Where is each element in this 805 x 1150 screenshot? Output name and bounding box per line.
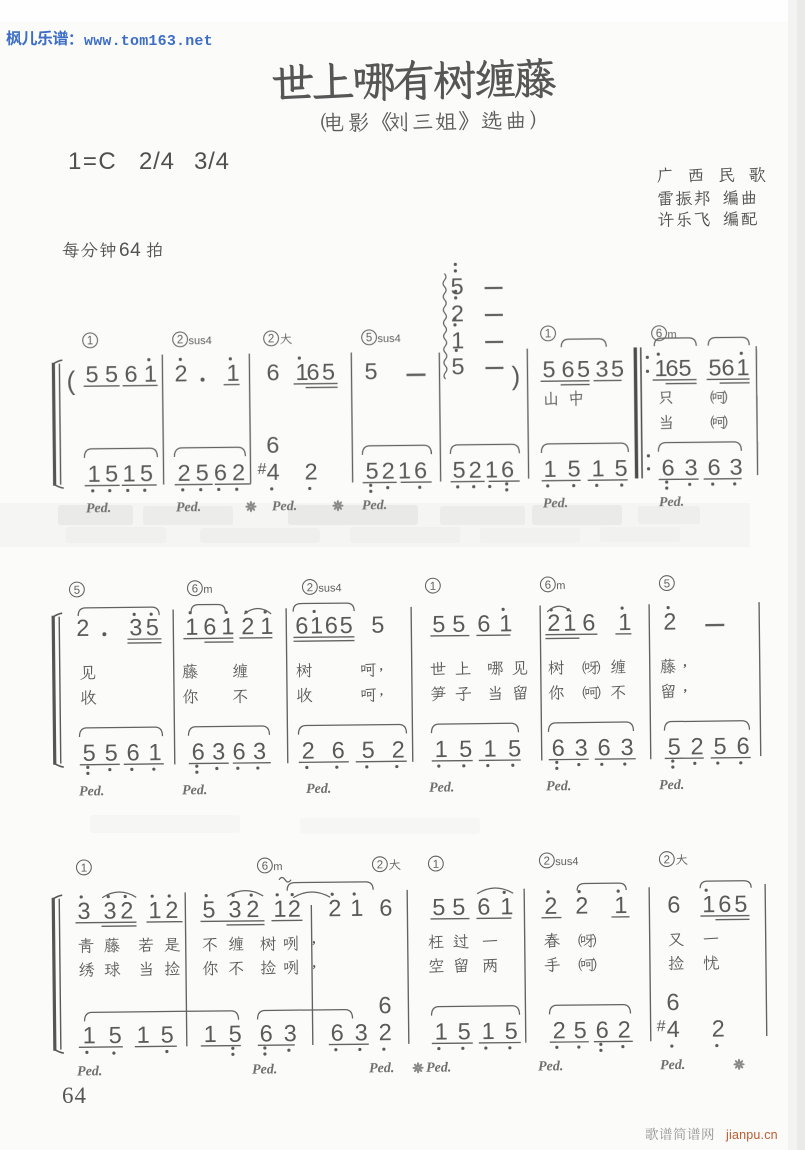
svg-text:2: 2 — [664, 854, 671, 866]
svg-text:6: 6 — [666, 989, 679, 1015]
svg-text:1: 1 — [87, 336, 94, 348]
svg-text:6: 6 — [545, 580, 552, 592]
svg-text:1: 1 — [591, 455, 604, 481]
svg-text:5: 5 — [229, 1021, 242, 1047]
svg-text:5216: 5216 — [365, 457, 430, 484]
svg-text:35: 35 — [595, 356, 626, 382]
svg-text:1: 1 — [499, 610, 512, 636]
svg-text:2: 2 — [76, 615, 89, 641]
svg-text:1: 1 — [204, 1021, 217, 1047]
svg-text:1: 1 — [618, 609, 631, 635]
svg-text:Ped.: Ped. — [660, 1058, 685, 1073]
svg-text:6: 6 — [665, 355, 678, 381]
svg-text:Ped.: Ped. — [272, 499, 297, 514]
svg-text:2: 2 — [712, 1015, 725, 1041]
svg-text:6: 6 — [721, 354, 734, 380]
svg-text:5: 5 — [362, 737, 375, 763]
svg-text:Ped.: Ped. — [362, 498, 387, 513]
svg-text:3/4: 3/4 — [194, 148, 230, 175]
svg-text:6: 6 — [379, 895, 392, 921]
svg-text:5: 5 — [371, 612, 384, 638]
svg-text:1: 1 — [81, 863, 88, 875]
svg-text:#: # — [657, 1018, 666, 1035]
svg-text:sus4: sus4 — [188, 335, 211, 347]
svg-text:6: 6 — [477, 611, 490, 637]
svg-text:1: 1 — [614, 892, 627, 918]
svg-text:64: 64 — [62, 1083, 87, 1108]
svg-text:5: 5 — [364, 358, 377, 384]
svg-text:5: 5 — [450, 273, 463, 299]
svg-text:3: 3 — [684, 454, 697, 480]
svg-text:64: 64 — [119, 240, 141, 261]
svg-text:Ped.: Ped. — [659, 778, 684, 793]
svg-text:Ped.: Ped. — [306, 782, 331, 797]
svg-text:15: 15 — [482, 1018, 528, 1044]
svg-text:1515: 1515 — [87, 460, 157, 487]
svg-text:2: 2 — [304, 458, 317, 484]
svg-text:2: 2 — [544, 856, 551, 868]
svg-text:5: 5 — [708, 355, 721, 381]
svg-text:5: 5 — [614, 455, 627, 481]
svg-text:5: 5 — [664, 578, 671, 590]
svg-text:5: 5 — [109, 1022, 122, 1048]
svg-text:6: 6 — [260, 1020, 273, 1046]
svg-text:6: 6 — [266, 359, 279, 385]
svg-text:55: 55 — [432, 894, 472, 920]
svg-text:2: 2 — [302, 737, 315, 763]
svg-text:5: 5 — [567, 456, 580, 482]
svg-text:65: 65 — [306, 359, 337, 385]
svg-text:161: 161 — [185, 613, 239, 640]
svg-text:15: 15 — [435, 1018, 481, 1044]
svg-text:1515: 1515 — [435, 735, 533, 762]
svg-text:2: 2 — [379, 1019, 392, 1045]
svg-text:1: 1 — [430, 581, 437, 593]
svg-text:sus4: sus4 — [377, 333, 400, 345]
svg-text:2: 2 — [307, 582, 314, 594]
svg-text:6: 6 — [192, 583, 199, 595]
svg-text:6165: 6165 — [295, 612, 354, 639]
svg-text:Ped.: Ped. — [369, 1061, 394, 1076]
svg-text:55: 55 — [432, 611, 472, 637]
svg-text:12: 12 — [148, 897, 182, 923]
svg-text:1: 1 — [226, 360, 239, 386]
svg-text:2: 2 — [174, 360, 187, 386]
svg-text:1: 1 — [433, 859, 440, 871]
svg-text:1=C: 1=C — [68, 148, 117, 175]
svg-text:3: 3 — [729, 454, 742, 480]
svg-text:Ped.: Ped. — [77, 1064, 102, 1079]
svg-text:165: 165 — [702, 891, 750, 918]
svg-text:6: 6 — [262, 861, 269, 873]
svg-text:5216: 5216 — [452, 456, 517, 483]
svg-text:Ped.: Ped. — [538, 1059, 563, 1074]
svg-text:4: 4 — [266, 459, 279, 485]
svg-text:5: 5 — [161, 1021, 174, 1047]
svg-text:1: 1 — [545, 329, 552, 341]
svg-text:32: 32 — [103, 897, 137, 923]
svg-text:1: 1 — [83, 1022, 96, 1048]
svg-text:6: 6 — [707, 454, 720, 480]
svg-text:Ped.: Ped. — [543, 496, 568, 511]
svg-text:5561: 5561 — [83, 739, 171, 766]
svg-text:6: 6 — [661, 455, 674, 481]
svg-text:5561: 5561 — [85, 361, 163, 388]
svg-text:6: 6 — [266, 432, 279, 458]
svg-text:Ped.: Ped. — [182, 783, 207, 798]
svg-text:#: # — [257, 461, 266, 478]
svg-text:4: 4 — [667, 1016, 680, 1042]
svg-text:m: m — [556, 580, 565, 592]
svg-text:1: 1 — [260, 613, 273, 639]
svg-text:1: 1 — [543, 456, 556, 482]
svg-text:Ped.: Ped. — [429, 780, 454, 795]
svg-text:3: 3 — [284, 1020, 297, 1046]
svg-text:6: 6 — [332, 737, 345, 763]
svg-text:6: 6 — [378, 992, 391, 1018]
svg-text:62: 62 — [596, 1016, 640, 1042]
svg-text:sus4: sus4 — [555, 856, 578, 868]
svg-text:Ped.: Ped. — [426, 1060, 451, 1075]
svg-text:6: 6 — [477, 894, 490, 920]
svg-text:5: 5 — [366, 332, 373, 344]
svg-text:): ) — [511, 361, 520, 391]
svg-text:5: 5 — [202, 896, 215, 922]
svg-text:2: 2 — [451, 300, 464, 326]
svg-text:1: 1 — [137, 1022, 150, 1048]
svg-text:5: 5 — [542, 356, 555, 382]
svg-text:m: m — [273, 861, 282, 873]
svg-text:m: m — [667, 329, 676, 341]
svg-text:35: 35 — [129, 614, 162, 640]
svg-text:Ped.: Ped. — [86, 501, 111, 516]
svg-text:5: 5 — [678, 355, 691, 381]
svg-text:6363: 6363 — [192, 738, 274, 765]
svg-text:21: 21 — [547, 610, 579, 636]
svg-text:6: 6 — [331, 1020, 344, 1046]
svg-text:2: 2 — [544, 893, 557, 919]
svg-text:2562: 2562 — [177, 459, 250, 486]
svg-text:2/4: 2/4 — [139, 148, 175, 175]
svg-text:sus4: sus4 — [318, 582, 341, 594]
svg-text:2: 2 — [663, 609, 676, 635]
svg-text:1: 1 — [350, 895, 363, 921]
svg-text:3: 3 — [355, 1019, 368, 1045]
svg-text:6: 6 — [667, 891, 680, 917]
svg-text:1: 1 — [736, 354, 749, 380]
svg-text:3: 3 — [77, 898, 90, 924]
svg-text:jianpu.cn: jianpu.cn — [725, 1128, 778, 1142]
svg-text:1: 1 — [451, 327, 464, 353]
svg-text:2: 2 — [392, 736, 405, 762]
svg-text:2: 2 — [268, 334, 275, 346]
svg-text:：: ： — [68, 31, 83, 48]
svg-text:32: 32 — [228, 896, 264, 922]
svg-text:5: 5 — [451, 353, 464, 379]
svg-text:6363: 6363 — [551, 734, 643, 761]
svg-text:2: 2 — [377, 859, 384, 871]
svg-text:2: 2 — [241, 613, 254, 639]
svg-text:6: 6 — [582, 609, 595, 635]
svg-text:25: 25 — [553, 1017, 595, 1043]
svg-text:Ped.: Ped. — [546, 779, 571, 794]
svg-text:12: 12 — [273, 896, 302, 922]
svg-text:5256: 5256 — [667, 733, 759, 760]
svg-text:2: 2 — [575, 892, 588, 918]
svg-text:2: 2 — [177, 335, 184, 347]
svg-text:Ped.: Ped. — [79, 784, 104, 799]
svg-text:Ped.: Ped. — [252, 1062, 277, 1077]
svg-text:5: 5 — [74, 585, 81, 597]
svg-text:m: m — [203, 584, 212, 596]
svg-text:Ped.: Ped. — [659, 495, 684, 510]
svg-text:Ped.: Ped. — [176, 500, 201, 515]
svg-text:65: 65 — [561, 356, 592, 382]
svg-text:1: 1 — [500, 893, 513, 919]
svg-text:(: ( — [66, 366, 75, 396]
svg-text:2: 2 — [328, 895, 341, 921]
svg-text:www.tom163.net: www.tom163.net — [84, 33, 213, 50]
